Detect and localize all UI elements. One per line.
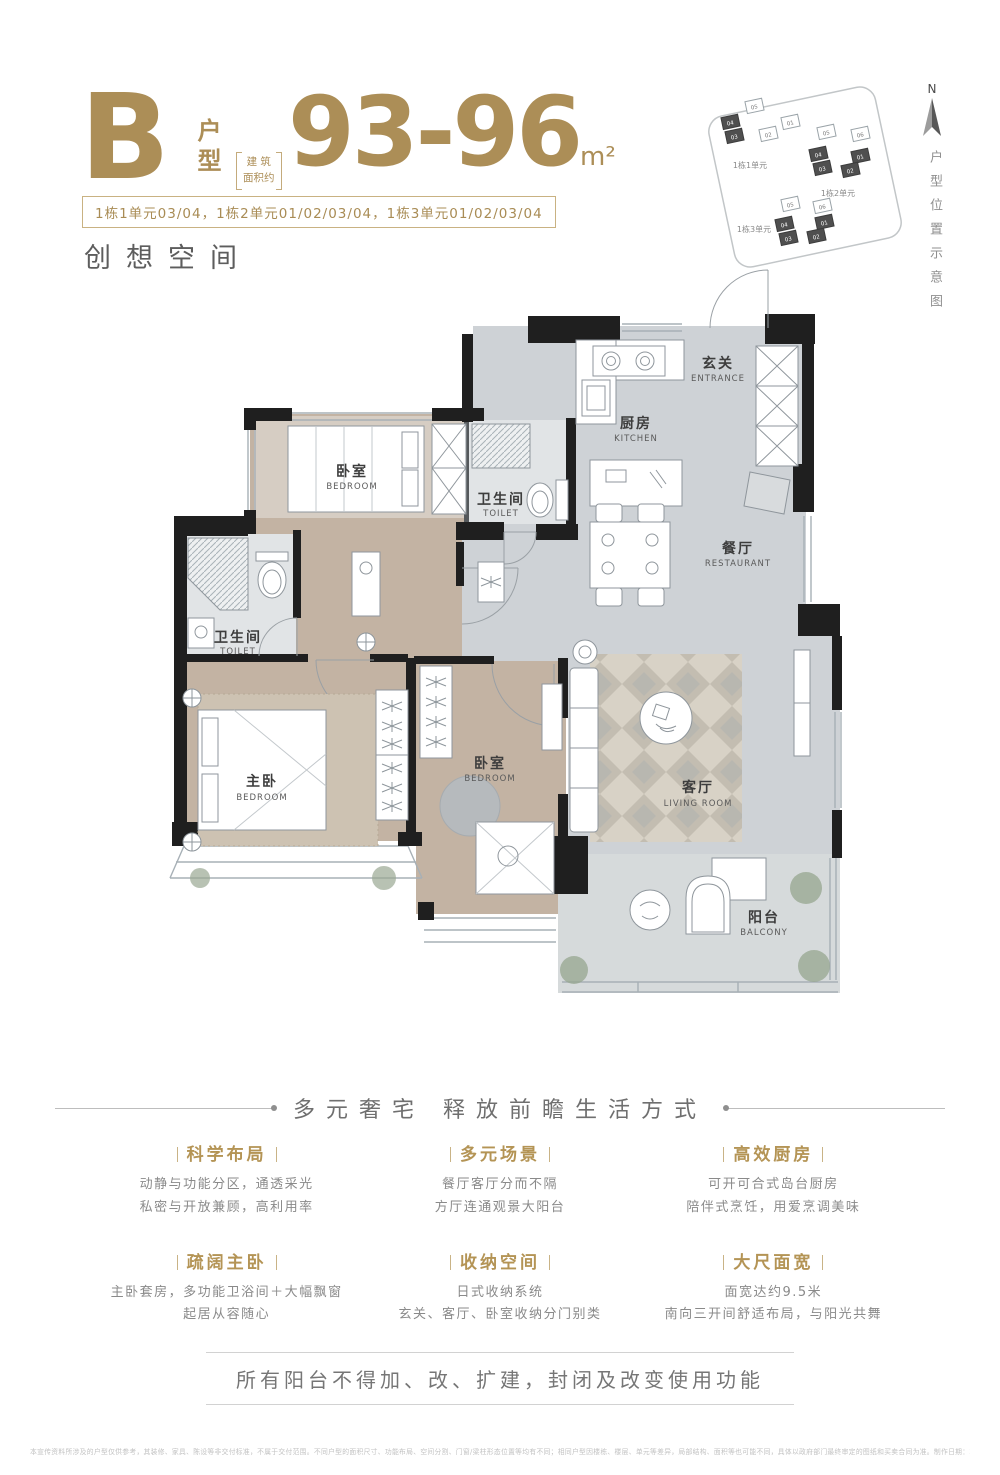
svg-text:BEDROOM: BEDROOM bbox=[326, 482, 377, 492]
feature-storage-space: 收纳空间 日式收纳系统玄关、客厅、卧室收纳分门别类 bbox=[368, 1248, 631, 1328]
svg-text:1栋1单元: 1栋1单元 bbox=[733, 160, 767, 170]
svg-text:BALCONY: BALCONY bbox=[740, 928, 788, 938]
area-unit: m² bbox=[580, 142, 616, 172]
tagline-row: 多元奢宅 释放前瞻生活方式 bbox=[0, 1092, 1000, 1124]
legal-disclaimer: 本宣传资料所涉及的户型仅供参考，其装修、家具、陈设等非交付标准，不属于交付范围。… bbox=[30, 1446, 970, 1456]
svg-text:LIVING ROOM: LIVING ROOM bbox=[664, 799, 733, 809]
unit-type-letter: B bbox=[80, 78, 168, 196]
master-furniture bbox=[183, 689, 408, 851]
svg-text:BEDROOM: BEDROOM bbox=[464, 774, 515, 784]
area-value: 93-96m² bbox=[288, 84, 616, 180]
tagline-rule-left bbox=[55, 1108, 273, 1109]
shoe-cabinet bbox=[744, 472, 790, 514]
svg-text:KITCHEN: KITCHEN bbox=[614, 434, 658, 444]
svg-text:N: N bbox=[928, 82, 937, 96]
svg-text:RESTAURANT: RESTAURANT bbox=[705, 559, 771, 569]
svg-text:客厅: 客厅 bbox=[681, 779, 714, 796]
svg-text:餐厅: 餐厅 bbox=[721, 540, 754, 557]
svg-text:玄关: 玄关 bbox=[702, 355, 734, 372]
svg-text:厨房: 厨房 bbox=[620, 415, 652, 432]
feature-spacious-master: 疏阔主卧 主卧套房，多功能卫浴间＋大幅飘窗起居从容随心 bbox=[95, 1248, 358, 1328]
svg-text:1栋2单元: 1栋2单元 bbox=[821, 188, 855, 198]
kitchen-island bbox=[590, 460, 682, 506]
area-note-line2: 面积约 bbox=[243, 171, 275, 187]
applicable-units-box: 1栋1单元03/04，1栋2单元01/02/03/04，1栋3单元01/02/0… bbox=[82, 196, 556, 228]
svg-text:卧室: 卧室 bbox=[336, 463, 368, 480]
balcony-notice: 所有阳台不得加、改、扩建，封闭及改变使用功能 bbox=[206, 1352, 794, 1405]
bedroom2-cabinet bbox=[542, 684, 562, 750]
balcony-pot bbox=[630, 890, 670, 930]
svg-text:BEDROOM: BEDROOM bbox=[236, 793, 287, 803]
label-toilet-top: 卫生间 TOILET bbox=[477, 491, 525, 519]
laundry-basin bbox=[686, 876, 730, 934]
feature-grid: 科学布局 动静与功能分区，通透采光私密与开放兼顾，高利用率 多元场景 餐厅客厅分… bbox=[95, 1140, 905, 1327]
unit-type-label: 户型 bbox=[196, 118, 222, 178]
feature-efficient-kitchen: 高效厨房 可开可合式岛台厨房陪伴式烹饪，用爱烹调美味 bbox=[642, 1140, 905, 1220]
toilet2-bowl bbox=[258, 562, 286, 598]
washer bbox=[472, 424, 530, 468]
toilet2-sink bbox=[188, 618, 214, 648]
svg-text:TOILET: TOILET bbox=[219, 647, 256, 657]
living-rug bbox=[590, 654, 742, 842]
kitchen-sink bbox=[582, 380, 610, 416]
side-caption: 户型位置示意图 bbox=[925, 150, 944, 318]
tagline-rule-right bbox=[727, 1108, 945, 1109]
svg-text:主卧: 主卧 bbox=[246, 773, 278, 790]
side-table bbox=[573, 640, 597, 664]
toilet1-bowl bbox=[527, 483, 553, 517]
tagline-text: 多元奢宅 释放前瞻生活方式 bbox=[293, 1092, 707, 1124]
svg-text:ENTRANCE: ENTRANCE bbox=[691, 374, 745, 384]
feature-multi-scene: 多元场景 餐厅客厅分而不隔方厅连通观景大阳台 bbox=[368, 1140, 631, 1220]
svg-text:1栋3单元: 1栋3单元 bbox=[737, 224, 771, 234]
feature-science-layout: 科学布局 动静与功能分区，通透采光私密与开放兼顾，高利用率 bbox=[95, 1140, 358, 1220]
flyer-page: B 户型 建 筑 面积约 93-96m² 1栋1单元03/04，1栋2单元01/… bbox=[0, 0, 1000, 1475]
sofa bbox=[570, 668, 598, 832]
area-note-bracket: 建 筑 面积约 bbox=[236, 152, 282, 190]
svg-text:TOILET: TOILET bbox=[482, 509, 519, 519]
label-toilet-left: 卫生间 TOILET bbox=[214, 629, 262, 657]
site-boundary bbox=[706, 84, 904, 270]
label-kitchen: 厨房 KITCHEN bbox=[614, 415, 658, 444]
site-location-map: 05 01 02 04 03 1栋1单元 05 06 04 03 01 02 1… bbox=[698, 70, 913, 282]
compass-north-icon: N bbox=[916, 80, 950, 146]
area-note-line1: 建 筑 bbox=[243, 155, 275, 171]
svg-text:卫生间: 卫生间 bbox=[477, 491, 525, 508]
dining-table bbox=[590, 522, 670, 588]
svg-text:阳台: 阳台 bbox=[748, 909, 780, 926]
svg-text:卫生间: 卫生间 bbox=[214, 629, 262, 646]
floor-plan: 玄关 ENTRANCE 厨房 KITCHEN 餐厅 RESTAURANT 卫生间… bbox=[138, 266, 858, 1052]
svg-text:卧室: 卧室 bbox=[474, 755, 506, 772]
feature-wide-frontage: 大尺面宽 面宽达约9.5米南向三开间舒适布局，与阳光共舞 bbox=[642, 1248, 905, 1328]
